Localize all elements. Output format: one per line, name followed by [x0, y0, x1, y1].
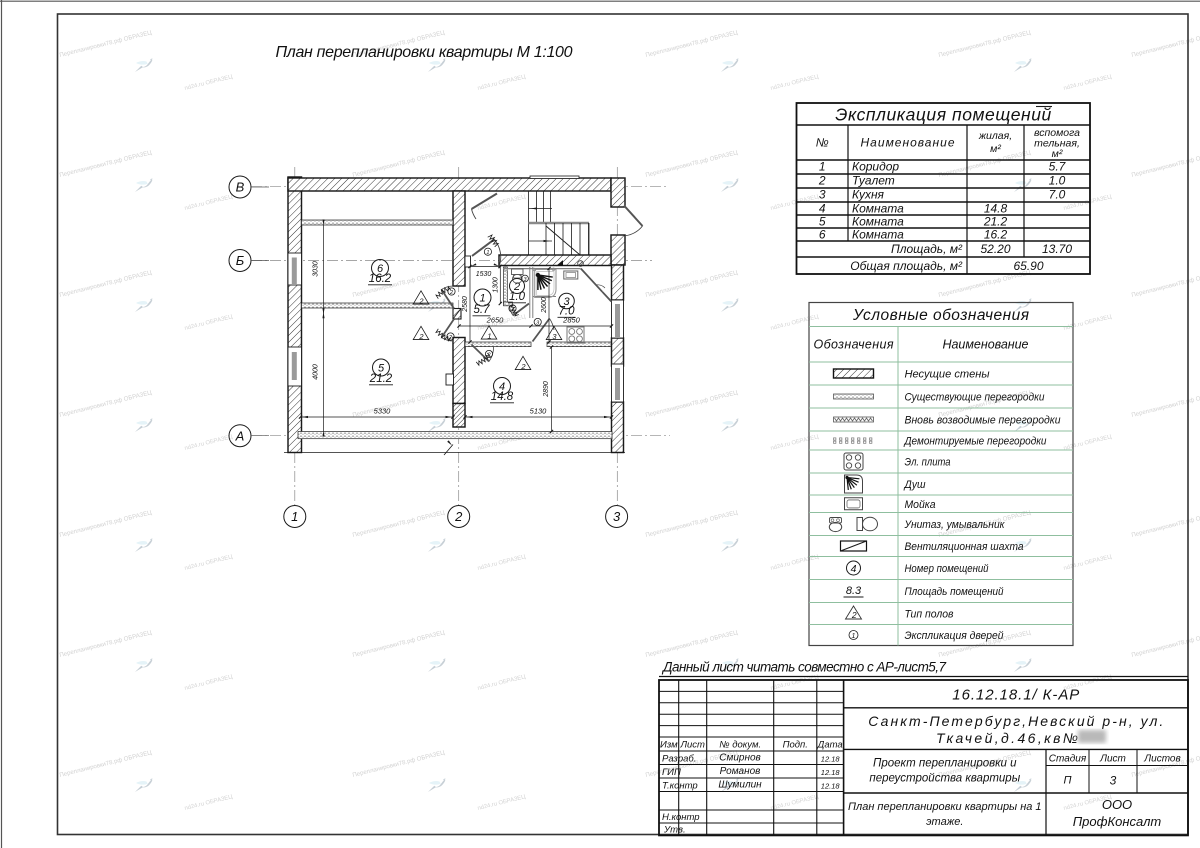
svg-text:ПрофКонсалт: ПрофКонсалт	[1073, 814, 1162, 829]
svg-text:В: В	[236, 180, 245, 195]
svg-text:1: 1	[479, 292, 485, 304]
svg-text:Утв.: Утв.	[663, 825, 686, 836]
svg-text:Н.контр: Н.контр	[662, 812, 700, 823]
svg-text:7.0: 7.0	[1049, 188, 1066, 202]
svg-text:2: 2	[818, 174, 826, 188]
svg-text:Душ: Душ	[903, 479, 926, 491]
svg-text:Обозначения: Обозначения	[814, 338, 894, 352]
svg-text:м²: м²	[990, 143, 1001, 155]
svg-text:Б: Б	[236, 253, 245, 268]
svg-text:Листов: Листов	[1143, 754, 1180, 765]
svg-text:Лист: Лист	[679, 740, 705, 751]
svg-text:6: 6	[819, 228, 826, 242]
svg-text:1530: 1530	[476, 271, 492, 278]
svg-text:Комната: Комната	[852, 215, 904, 229]
svg-text:Демонтируемые перегородки: Демонтируемые перегородки	[903, 436, 1047, 448]
svg-text:Площадь, м²: Площадь, м²	[891, 242, 963, 256]
svg-text:П: П	[1064, 775, 1072, 787]
svg-text:14.8: 14.8	[491, 391, 514, 403]
svg-text:2: 2	[851, 610, 857, 620]
svg-text:Условные обозначения: Условные обозначения	[852, 307, 1029, 324]
svg-text:2: 2	[486, 353, 490, 359]
svg-text:12.18: 12.18	[821, 782, 841, 791]
svg-text:2: 2	[418, 297, 424, 306]
svg-text:4: 4	[819, 202, 826, 216]
svg-text:Общая площадь, м²: Общая площадь, м²	[850, 259, 963, 273]
svg-text:№ докум.: № докум.	[719, 740, 761, 751]
svg-text:План перепланировки квартиры н: План перепланировки квартиры на 1	[848, 801, 1042, 813]
svg-text:Тип полов: Тип полов	[905, 609, 954, 621]
svg-text:2: 2	[454, 509, 463, 524]
svg-text:Коридор: Коридор	[852, 160, 899, 174]
svg-text:Т.контр: Т.контр	[662, 781, 698, 792]
svg-text:переустройства квартиры: переустройства квартиры	[869, 773, 1020, 785]
svg-text:Проект перепланировки и: Проект перепланировки и	[873, 758, 1017, 770]
svg-text:21.2: 21.2	[369, 373, 393, 385]
svg-text:2: 2	[418, 332, 424, 341]
svg-text:Подп.: Подп.	[783, 740, 808, 751]
svg-text:7.0: 7.0	[559, 306, 576, 318]
svg-text:Стадия: Стадия	[1049, 754, 1087, 765]
svg-text:Смирнов: Смирнов	[719, 753, 760, 764]
svg-text:Разраб.: Разраб.	[662, 754, 696, 765]
svg-text:2600: 2600	[541, 297, 548, 314]
svg-text:2580: 2580	[462, 296, 469, 313]
svg-text:5330: 5330	[374, 407, 392, 416]
svg-text:Несущие стены: Несущие стены	[905, 369, 991, 381]
svg-text:Номер помещений: Номер помещений	[905, 563, 989, 575]
svg-text:14.8: 14.8	[984, 202, 1008, 216]
svg-text:Данный лист читать совместно с: Данный лист читать совместно с АР-лист5,…	[661, 660, 946, 675]
svg-text:Экспликация дверей: Экспликация дверей	[905, 630, 1004, 642]
svg-text:Мойка: Мойка	[905, 499, 936, 511]
svg-text:Шумилин: Шумилин	[718, 780, 762, 791]
svg-text:21.2: 21.2	[983, 215, 1008, 229]
svg-text:13.70: 13.70	[1042, 242, 1072, 256]
svg-text:5.7: 5.7	[474, 304, 491, 316]
svg-text:Изм: Изм	[660, 740, 678, 751]
svg-text:1300: 1300	[493, 277, 500, 293]
svg-text:Наименование: Наименование	[943, 338, 1029, 352]
svg-text:Вентиляционная шахта: Вентиляционная шахта	[905, 541, 1024, 553]
svg-text:3: 3	[819, 188, 826, 202]
svg-text:Дата: Дата	[817, 740, 843, 751]
svg-text:1: 1	[819, 160, 826, 174]
svg-text:Наименование: Наименование	[861, 136, 955, 150]
svg-text:2890: 2890	[543, 381, 550, 398]
svg-text:1.0: 1.0	[1049, 174, 1066, 188]
svg-text:1.0: 1.0	[509, 291, 526, 303]
svg-text:52.20: 52.20	[980, 242, 1010, 256]
svg-text:Комната: Комната	[852, 228, 904, 242]
svg-text:4000: 4000	[313, 364, 320, 380]
svg-text:Романов: Романов	[720, 766, 761, 777]
svg-text:Лист: Лист	[1099, 754, 1126, 765]
svg-text:Вновь возводимые перегородки: Вновь возводимые перегородки	[905, 415, 1061, 427]
svg-text:3030: 3030	[313, 261, 320, 277]
svg-text:А: А	[235, 428, 245, 443]
svg-text:2: 2	[449, 290, 453, 296]
svg-text:3: 3	[613, 509, 621, 524]
svg-text:Туалет: Туалет	[852, 174, 895, 188]
svg-text:ООО: ООО	[1102, 797, 1132, 812]
svg-text:5.7: 5.7	[1049, 160, 1067, 174]
svg-text:Экспликация помещений: Экспликация помещений	[835, 105, 1051, 125]
svg-text:2: 2	[448, 335, 452, 341]
svg-text:Санкт-Петербург,Невский р-н, у: Санкт-Петербург,Невский р-н, ул.	[868, 713, 1163, 729]
svg-text:Кухня: Кухня	[852, 188, 885, 202]
svg-text:План перепланировки квартиры М: План перепланировки квартиры М 1:100	[276, 44, 573, 61]
svg-text:2650: 2650	[486, 316, 505, 325]
svg-text:5130: 5130	[530, 407, 548, 416]
svg-text:8.3: 8.3	[846, 585, 862, 597]
svg-text:16.12.18.1/ К-АР: 16.12.18.1/ К-АР	[952, 687, 1079, 704]
svg-text:4: 4	[851, 563, 857, 575]
svg-text:Унитаз, умывальник: Унитаз, умывальник	[904, 519, 1006, 531]
svg-text:16.2: 16.2	[984, 228, 1008, 242]
svg-text:жилая,: жилая,	[978, 130, 1012, 142]
svg-text:16.2: 16.2	[369, 273, 392, 285]
svg-text:этаже.: этаже.	[926, 816, 963, 828]
svg-text:3: 3	[1110, 774, 1117, 788]
svg-text:1: 1	[852, 633, 856, 640]
svg-text:Эл. плита: Эл. плита	[905, 457, 951, 469]
svg-text:5: 5	[819, 215, 826, 229]
svg-text:№: №	[816, 136, 829, 150]
svg-text:Комната: Комната	[852, 202, 904, 216]
svg-text:1: 1	[487, 332, 491, 341]
svg-text:м²: м²	[1052, 148, 1063, 160]
svg-text:12.18: 12.18	[821, 768, 841, 777]
svg-text:12.18: 12.18	[821, 755, 841, 764]
svg-text:Площадь помещений: Площадь помещений	[905, 586, 1004, 598]
svg-text:Существующие перегородки: Существующие перегородки	[905, 392, 1045, 404]
svg-text:Ткачей,д.46,кв№: Ткачей,д.46,кв№	[936, 730, 1078, 746]
svg-text:2: 2	[520, 362, 526, 371]
svg-text:65.90: 65.90	[1013, 259, 1043, 273]
svg-text:1: 1	[486, 250, 489, 256]
svg-text:1: 1	[291, 509, 298, 524]
svg-text:ГИП: ГИП	[662, 767, 681, 778]
